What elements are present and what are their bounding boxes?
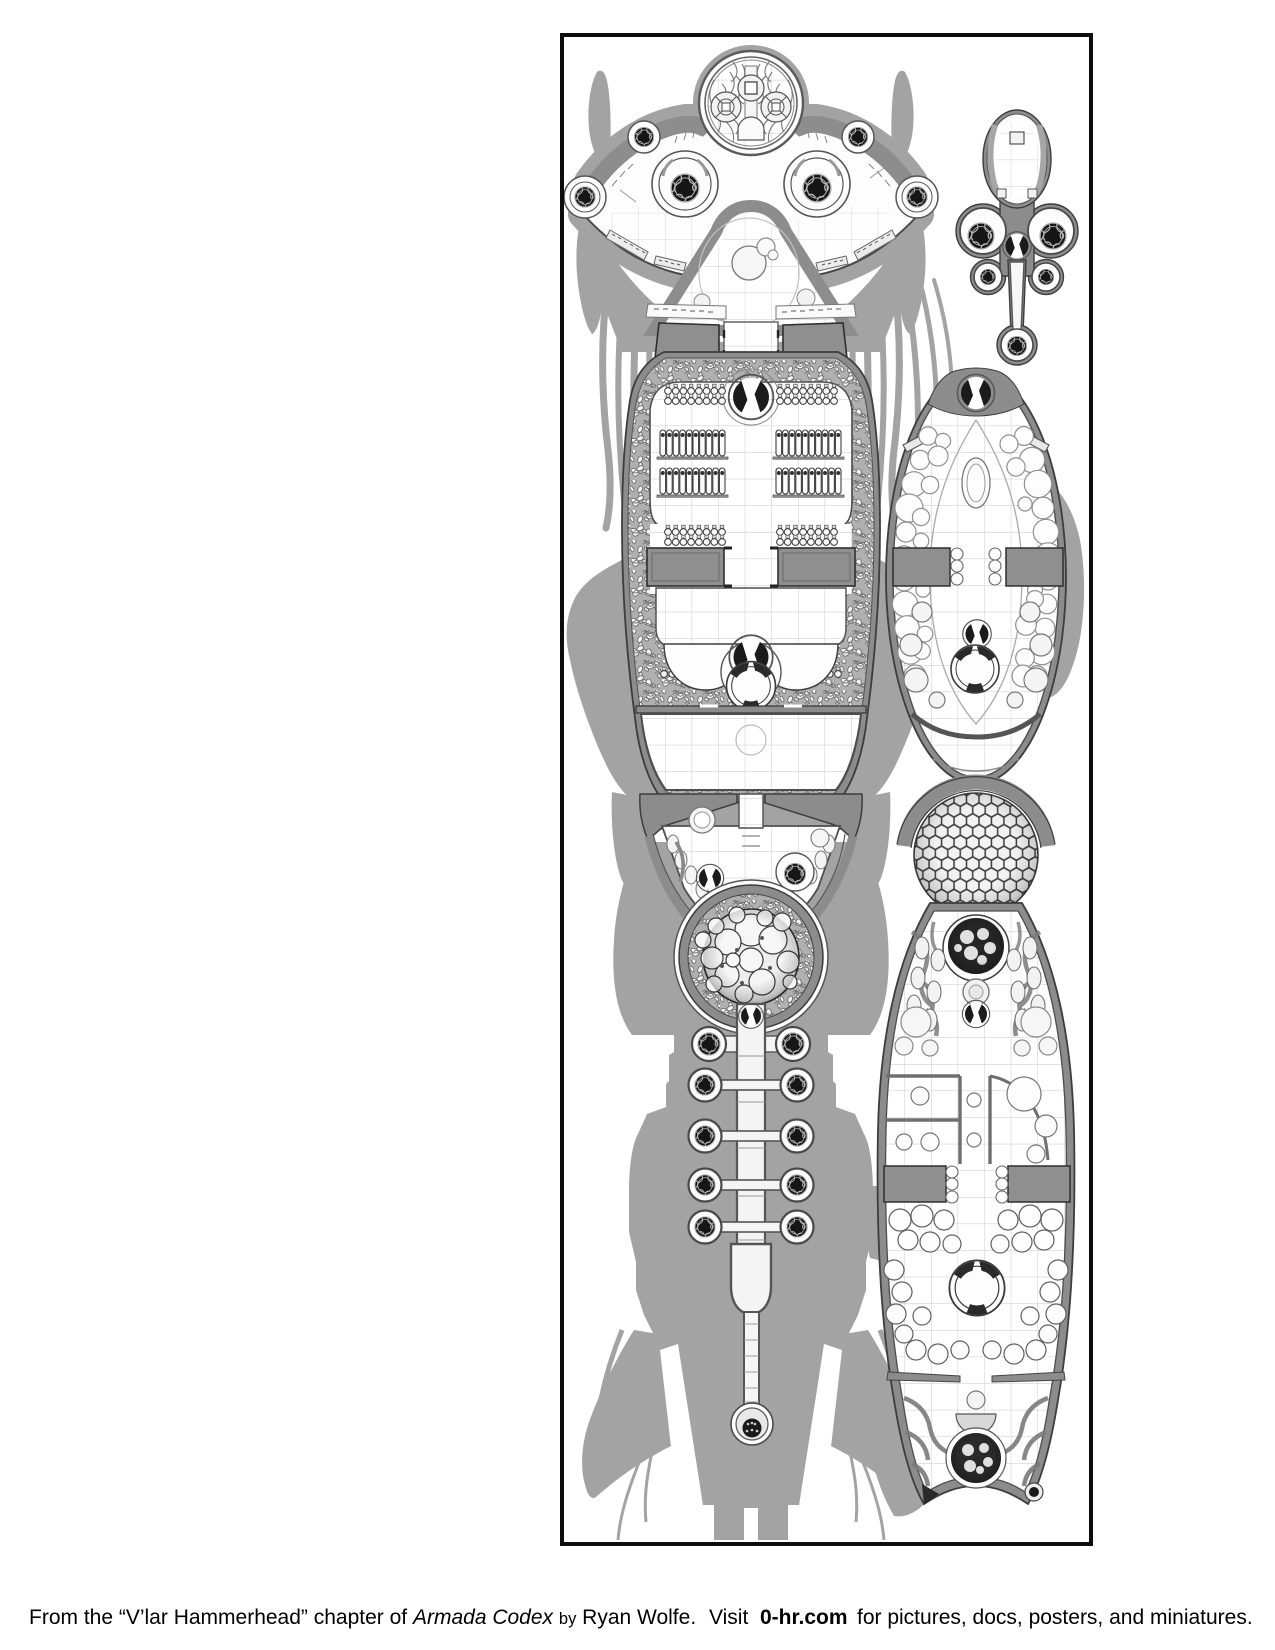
svg-text:From the “V’lar Hammerhead” ch: From the “V’lar Hammerhead” chapter of A…	[29, 1606, 696, 1629]
svg-text:Visit: Visit	[709, 1606, 748, 1629]
svg-text:for pictures, docs, posters, a: for pictures, docs, posters, and miniatu…	[857, 1606, 1253, 1629]
svg-text:0-hr.com: 0-hr.com	[760, 1606, 848, 1629]
